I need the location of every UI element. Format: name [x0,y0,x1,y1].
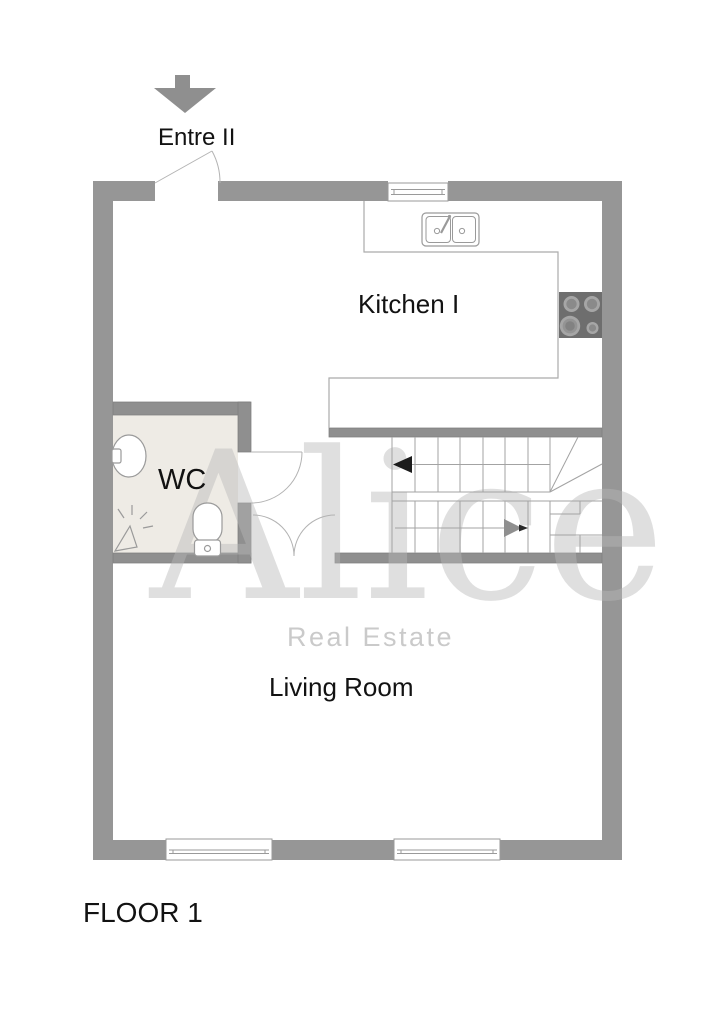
kitchen-sink-icon [422,213,479,246]
living-room-double-door-icon [253,515,335,556]
entry-label: Entre II [158,126,235,150]
wall-lamp-icon [115,505,153,551]
toilet-icon [193,503,222,556]
wc-label: WC [158,466,206,495]
stairs-up-arrow-icon [393,456,412,473]
floor-title: FLOOR 1 [83,899,203,927]
wc-door-swing-icon [251,452,302,503]
washbasin-icon [112,435,146,477]
kitchen-label: Kitchen I [358,291,459,317]
stove-icon [559,292,602,338]
entry-direction-arrow-icon [154,75,216,113]
staircase [392,437,602,553]
entry-door-swing-icon [155,151,220,183]
living-room-label: Living Room [269,674,414,700]
stairs-down-arrow-tip-icon [519,525,528,532]
floorplan-page: Alice Real Estate [0,0,724,1024]
floorplan-overlay-layer [0,0,724,1024]
